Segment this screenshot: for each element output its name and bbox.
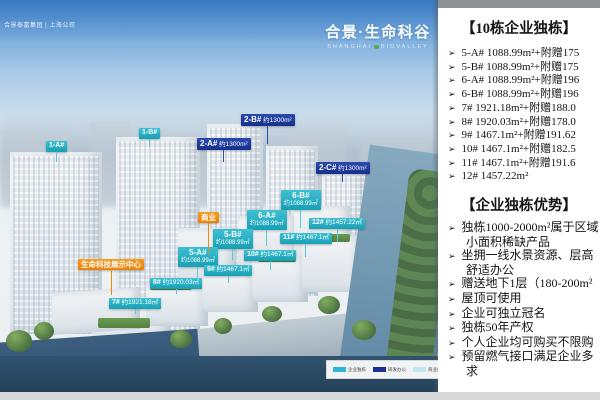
tree [352,320,376,340]
building-tag-label: 商业 [201,213,216,222]
bullet-icon: ➢ [448,337,456,351]
bullet-icon: ➢ [448,278,456,292]
building-list-text: 8# 1920.03m²+附赠178.0 [462,116,576,128]
advantage-text: 屋顶可使用 [462,291,522,305]
building-tag-label: 5-B# [216,230,250,240]
advantage-item: ➢屋顶可使用 [438,292,600,307]
building-tag: 9# 约1467.1㎡ [204,265,252,283]
building-list-item: ➢10# 1467.1m²+附赠182.5 [438,143,600,157]
bullet-icon: ➢ [448,102,456,116]
building-list-item: ➢12# 1457.22m² [438,170,600,184]
bullet-icon: ➢ [448,170,456,184]
bullet-icon: ➢ [448,129,456,143]
tree [34,322,54,340]
bottom-strip [0,392,600,400]
tag-leader-line [337,229,338,242]
legend-label: 商业配套 [428,367,438,373]
advantage-text: 舒适办公 [466,263,514,277]
bullet-icon: ➢ [448,351,456,365]
building-tag-area: 约1088.99㎡ [284,201,318,209]
building-tag-box: 9# 约1467.1㎡ [204,265,252,276]
legend-swatch [373,367,386,372]
building-tag-area: 约1920.03㎡ [161,279,199,286]
building-tag-box: 6-B#约1088.99㎡ [281,190,321,210]
building-list-item: ➢6-B# 1088.99m²+附赠196 [438,88,600,102]
building-tag: 7# 约1921.18㎡ [109,298,161,314]
bullet-icon: ➢ [448,74,456,88]
advantage-item: ➢独栋50年产权 [438,321,600,336]
aerial-render: 合景泰富集团 | 上海公司 合景·生命科谷 SHANGHAIBIOVALLEY … [0,0,438,392]
advantage-item: ➢独栋1000-2000m²属于区域小面积稀缺产品 [438,221,600,249]
building-tag-label: 9# [207,266,215,273]
bullet-icon: ➢ [448,293,456,307]
building-tag-label: 6-B# [284,191,318,201]
advantage-text: 独栋1000-2000m²属于区域 [462,220,599,234]
advantage-item: ➢坐拥一线水景资源、层高舒适办公 [438,249,600,277]
building-tag-area: 约1300m² [336,165,366,172]
advantages-section-title: 【企业独栋优势】 [438,194,600,215]
building-tag-label: 2-A# [200,139,217,148]
advantage-text: 企业可独立冠名 [462,306,546,320]
building-tag-area: 约1457.22㎡ [324,219,362,226]
bullet-icon: ➢ [448,322,456,336]
bullet-icon: ➢ [448,222,456,236]
building-tag: 2-C# 约1300m² [316,162,370,182]
tag-leader-line [305,244,306,257]
building-tag-label: 2-C# [319,163,336,172]
tag-leader-line [267,126,268,144]
advantage-text: 赠送地下1层（180-200m² [462,276,593,290]
advantage-text: 小面积稀缺产品 [466,235,550,249]
tag-leader-line [300,210,301,228]
building-tag-area: 约1467.1㎡ [259,251,294,258]
building-list-text: 5-B# 1088.99m²+附赠175 [462,61,579,73]
advantage-text: 预留燃气接口满足企业多 [462,349,594,363]
building-tag-box: 2-C# 约1300m² [316,162,370,174]
building-tag-box: 1-A# [46,141,67,152]
building-tag-box: 6-A#约1088.99㎡ [247,210,287,230]
advantage-item: ➢预留燃气接口满足企业多求 [438,350,600,378]
tag-leader-line [232,249,233,260]
info-panel: 【10栋企业独栋】 ➢5-A# 1088.99m²+附赠175➢5-B# 108… [438,8,600,392]
building-list-text: 12# 1457.22m² [462,170,529,182]
green-roof [98,318,150,328]
advantage-line: ➢坐拥一线水景资源、层高 [448,249,600,264]
tag-leader-line [149,139,150,147]
advantage-text: 独栋50年产权 [462,320,534,334]
bullet-icon: ➢ [448,143,456,157]
building-list-item: ➢9# 1467.1m²+附赠191.62 [438,129,600,143]
advantage-text: 求 [466,364,478,378]
building-tag-area: 约1088.99㎡ [216,240,250,248]
building-tag: 1-A# [46,141,67,162]
building-tag-label: 1-B# [142,129,157,136]
building-tag-box: 12# 约1457.22㎡ [309,218,365,229]
tree [6,330,32,352]
tag-leader-line [270,261,271,270]
advantage-line: ➢独栋50年产权 [448,321,600,336]
slide: 合景泰富集团 | 上海公司 合景·生命科谷 SHANGHAIBIOVALLEY … [0,0,600,400]
building-tag-box: 10# 约1467.1㎡ [244,250,296,261]
advantage-item: ➢企业可独立冠名 [438,307,600,322]
building-tag-label: 生命科技展示中心 [81,260,141,269]
building-list-item: ➢8# 1920.03m²+附赠178.0 [438,116,600,130]
legend-label: 企业独栋 [348,367,366,373]
building-tag-box: 1-B# [139,128,160,139]
tag-leader-line [223,150,224,162]
building-list-item: ➢6-A# 1088.99m²+附赠196 [438,74,600,88]
building-list: ➢5-A# 1088.99m²+附赠175➢5-B# 1088.99m²+附赠1… [438,47,600,184]
tree [214,318,232,334]
tag-leader-line [135,309,136,314]
building-tag-label: 6-A# [250,211,284,221]
legend-item: 企业独栋 [333,367,366,373]
building-list-item: ➢11# 1467.1m²+附赠191.6 [438,157,600,171]
legend-swatch [333,367,346,372]
buildings-section-title: 【10栋企业独栋】 [438,8,600,38]
tag-leader-line [56,152,57,162]
map-legend: 企业独栋研发办公商业配套 [326,360,438,379]
tag-leader-line [228,276,229,283]
building-list-text: 6-B# 1088.99m²+附赠196 [462,88,579,100]
legend-items: 企业独栋研发办公商业配套 [333,367,438,373]
tag-leader-line [197,267,198,278]
building-tag-label: 7# [112,299,120,306]
advantage-line: ➢赠送地下1层（180-200m² [448,277,600,292]
bullet-icon: ➢ [448,88,456,102]
legend-item: 商业配套 [413,367,438,373]
building-tag-label: 12# [312,219,324,226]
tree [318,296,340,314]
building-tag-label: 10# [247,251,259,258]
brand-text: 合景泰富集团 | 上海公司 [4,20,75,29]
logo-subtitle: SHANGHAIBIOVALLEY [316,44,438,50]
advantage-list: ➢独栋1000-2000m²属于区域小面积稀缺产品➢坐拥一线水景资源、层高舒适办… [438,221,600,379]
tag-leader-line [176,289,177,294]
logo-title: 合景·生命科谷 [316,21,438,42]
building-tag: 2-B# 约1300m² [241,114,295,144]
advantage-item: ➢赠送地下1层（180-200m² [438,277,600,292]
building-tag-label: 2-B# [244,115,261,124]
building-tag-box: 11# 约1467.1㎡ [280,233,332,244]
advantage-line: ➢预留燃气接口满足企业多 [448,350,600,365]
advantage-line: 求 [448,365,600,379]
advantage-text: 坐拥一线水景资源、层高 [462,248,594,262]
legend-label: 研发办公 [388,367,406,373]
building-tag-box: 7# 约1921.18㎡ [109,298,161,309]
legend-item: 研发办公 [373,367,406,373]
advantage-line: ➢屋顶可使用 [448,292,600,307]
building-list-item: ➢5-B# 1088.99m²+附赠175 [438,61,600,75]
tag-leader-line [342,174,343,182]
building-tag-box: 生命科技展示中心 [78,259,144,270]
building-tag-label: 1-A# [49,142,64,149]
building-tag-area: 约1300m² [261,117,291,124]
building-tag-area: 约1467.1㎡ [215,266,250,273]
building-tag-box: 2-B# 约1300m² [241,114,295,126]
building-list-text: 9# 1467.1m²+附赠191.62 [462,129,576,141]
building-list-text: 10# 1467.1m²+附赠182.5 [462,143,576,155]
leaf-icon [374,45,379,49]
building-tag-area: 约1921.18㎡ [120,299,158,306]
building-tag-area: 约1467.1㎡ [294,234,329,241]
building-list-item: ➢7# 1921.18m²+附赠188.0 [438,102,600,116]
bullet-icon: ➢ [448,308,456,322]
building-tag-box: 商业 [198,212,219,223]
legend-swatch [413,367,426,372]
advantage-text: 个人企业均可购买不限购 [462,335,594,349]
bullet-icon: ➢ [448,47,456,61]
bullet-icon: ➢ [448,250,456,264]
building-tag: 商业 [198,212,219,253]
building-list-text: 6-A# 1088.99m²+附赠196 [462,74,580,86]
building-tag-area: 约1088.99㎡ [250,221,284,229]
advantage-line: ➢企业可独立冠名 [448,307,600,322]
building-tag: 1-B# [139,128,160,147]
building-tag-label: 8# [153,279,161,286]
building-tag: 生命科技展示中心 [78,259,144,295]
building-list-text: 5-A# 1088.99m²+附赠175 [462,47,580,59]
building-list-text: 11# 1467.1m²+附赠191.6 [462,157,576,169]
tag-leader-line [266,230,267,246]
tree [262,306,282,322]
building-list-item: ➢5-A# 1088.99m²+附赠175 [438,47,600,61]
bullet-icon: ➢ [448,157,456,171]
bullet-icon: ➢ [448,116,456,130]
tag-leader-line [111,270,112,295]
building-tag-box: 8# 约1920.03㎡ [150,278,202,289]
advantage-line: ➢独栋1000-2000m²属于区域 [448,221,600,236]
tree [170,330,192,348]
project-logo: 合景·生命科谷 SHANGHAIBIOVALLEY [316,21,438,50]
building-tag-label: 11# [283,234,294,241]
bullet-icon: ➢ [448,61,456,75]
building-tag: 8# 约1920.03㎡ [150,278,202,294]
tag-leader-line [208,223,209,253]
building-list-text: 7# 1921.18m²+附赠188.0 [462,102,576,114]
